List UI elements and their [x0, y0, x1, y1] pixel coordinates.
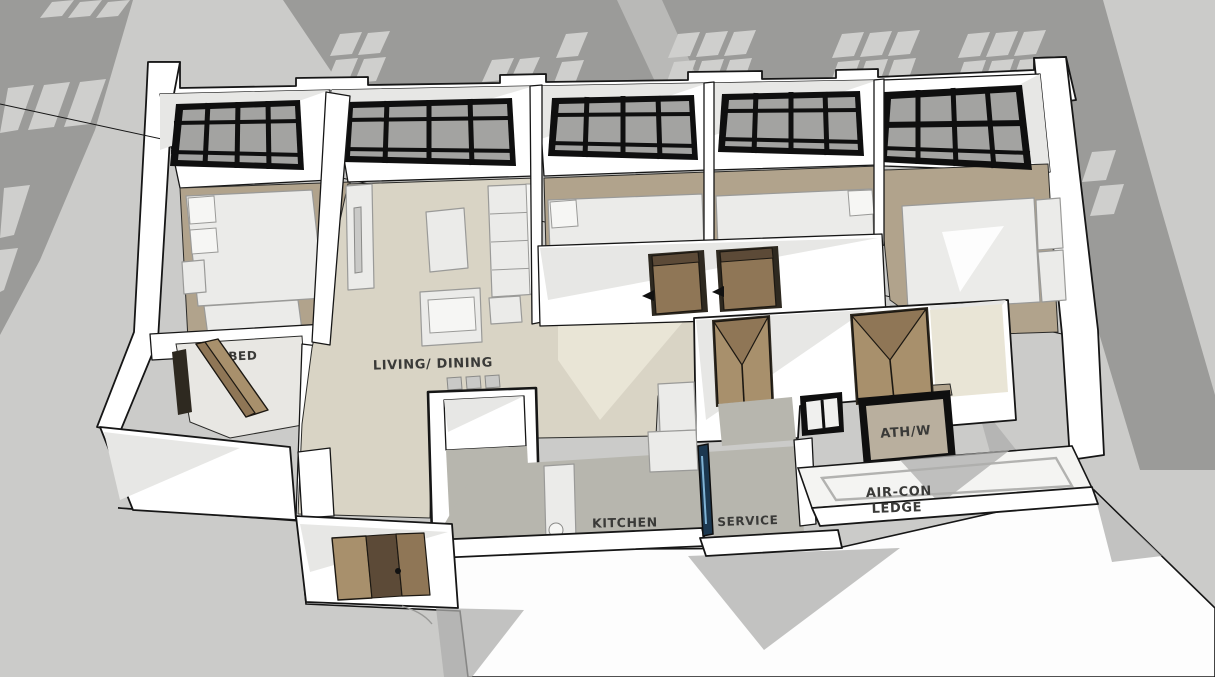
kitchen-counter: [544, 464, 576, 542]
nightstand: [1038, 250, 1066, 302]
pillow: [848, 190, 874, 216]
door-knob: [395, 568, 401, 574]
window-living: [342, 98, 516, 166]
main-entrance-door: [332, 533, 430, 600]
bedroom-3: [704, 80, 880, 252]
wall: [874, 79, 884, 248]
armchair: [420, 288, 482, 346]
cabinet: [648, 430, 698, 472]
scene-canvas: BED: [0, 0, 1215, 677]
tv: [354, 207, 362, 273]
bathroom-2-bifold-door: [850, 307, 934, 405]
tv-console: [346, 184, 374, 290]
bathroom-1-floor: [718, 397, 796, 446]
wall: [704, 82, 714, 252]
side-table: [489, 296, 522, 324]
pillow: [190, 228, 218, 254]
label-service: SERVICE: [717, 513, 778, 529]
bathroom-small-window: [800, 392, 844, 436]
dining-chairs: [447, 375, 500, 390]
window-bedroom-3: [718, 91, 864, 156]
double-bed-master: [902, 198, 1066, 310]
wall-return: [298, 448, 334, 518]
label-living-dining: LIVING/ DINING: [373, 355, 493, 373]
fridge: [658, 382, 696, 432]
label-aircon-1: AIR-CON: [866, 484, 932, 501]
nightstand: [1036, 198, 1063, 250]
label-aircon-2: LEDGE: [871, 500, 922, 517]
window-bedroom-2: [548, 95, 698, 160]
pillow: [550, 200, 578, 228]
label-kitchen: KITCHEN: [592, 514, 658, 530]
window-master: [880, 85, 1032, 170]
door-bedroom-2: [642, 250, 708, 316]
pillow: [188, 196, 216, 224]
bathroom-1-bifold-door: [712, 315, 774, 407]
master-hall-floor: [930, 304, 1008, 398]
floorplan-3d-view: BED: [0, 0, 1215, 677]
coffee-table: [426, 208, 468, 272]
master-bedroom: [874, 74, 1066, 336]
nightstand: [182, 260, 206, 294]
window-bedroom-left: [170, 100, 304, 170]
door-bedroom-3: [712, 246, 782, 312]
